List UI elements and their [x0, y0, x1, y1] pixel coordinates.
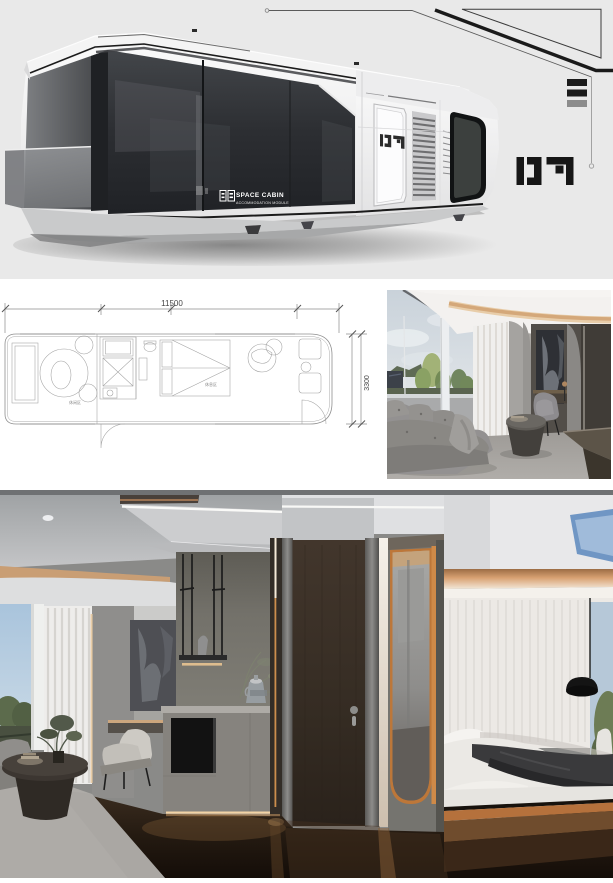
svg-text:休息区: 休息区	[205, 381, 217, 387]
svg-text:SPACE CABIN: SPACE CABIN	[236, 192, 284, 199]
svg-text:休闲区: 休闲区	[69, 399, 81, 405]
svg-text:3300: 3300	[364, 375, 371, 391]
svg-text:ACCOMMODATION MODULE: ACCOMMODATION MODULE	[236, 201, 289, 205]
svg-text:11500: 11500	[161, 299, 183, 308]
